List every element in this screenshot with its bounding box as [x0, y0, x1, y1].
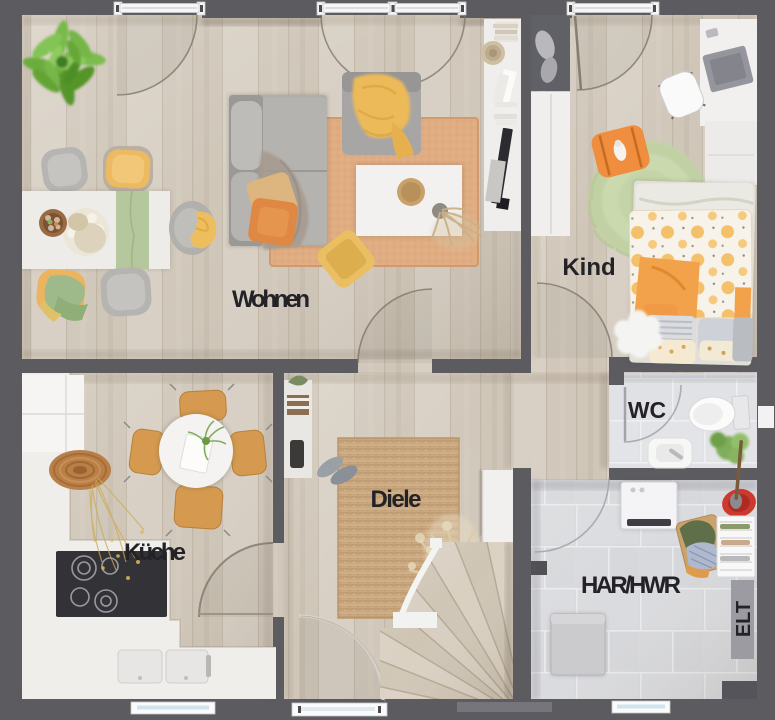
svg-text:Diele: Diele — [371, 486, 422, 513]
svg-text:Wohnen: Wohnen — [232, 286, 310, 313]
svg-text:HAR/HWR: HAR/HWR — [581, 572, 681, 599]
svg-text:Küche: Küche — [124, 539, 186, 566]
svg-text:WC: WC — [628, 397, 666, 423]
svg-text:ELT: ELT — [733, 601, 755, 637]
svg-text:Kind: Kind — [562, 254, 615, 281]
